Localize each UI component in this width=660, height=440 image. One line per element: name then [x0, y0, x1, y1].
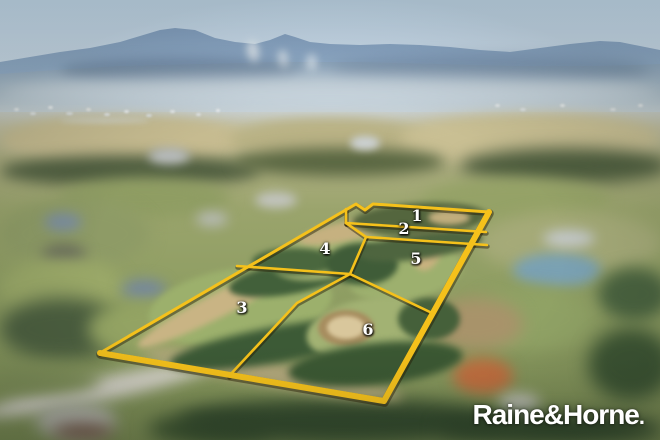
lot-label-6: 6: [362, 322, 373, 338]
aerial-photo: 1 2 3 4 5 6 Raine&Horne.: [0, 0, 660, 440]
boundary-outer-thin: [100, 204, 489, 353]
wordmark-period: .: [639, 404, 644, 429]
lot6-upper-boundary: [229, 274, 432, 376]
lot-label-2: 2: [398, 221, 409, 237]
lot-label-1: 1: [411, 208, 422, 224]
lot-label-4: 4: [319, 241, 330, 257]
agency-wordmark: Raine&Horne: [473, 399, 639, 430]
lot-label-5: 5: [410, 251, 421, 267]
lot4-5-divider: [350, 237, 366, 274]
agency-logo: Raine&Horne.: [473, 399, 645, 431]
lot-label-3: 3: [236, 300, 247, 316]
property-boundary: [0, 0, 660, 440]
